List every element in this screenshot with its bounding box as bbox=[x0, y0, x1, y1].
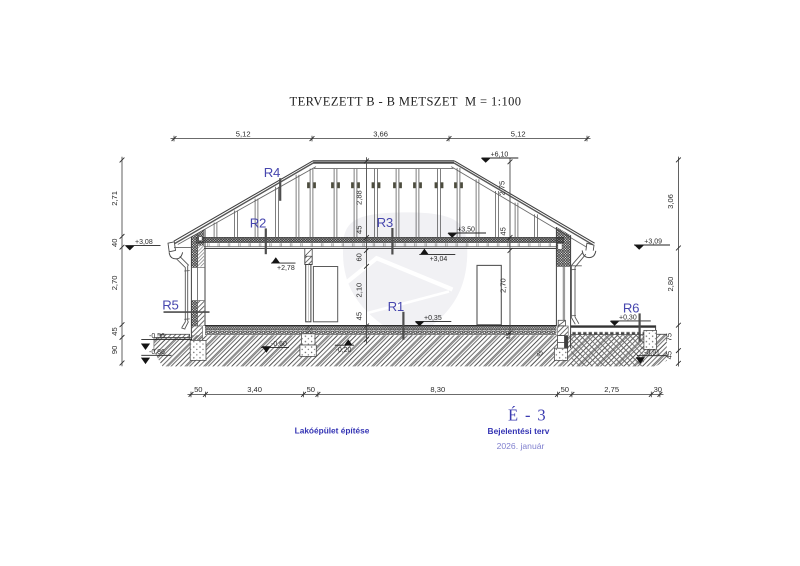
svg-text:+2,78: +2,78 bbox=[277, 265, 295, 272]
svg-text:2,80: 2,80 bbox=[666, 277, 675, 292]
svg-text:2,75: 2,75 bbox=[604, 385, 619, 394]
svg-text:90: 90 bbox=[110, 346, 119, 354]
svg-text:2026. január: 2026. január bbox=[497, 441, 545, 451]
svg-text:60: 60 bbox=[355, 253, 364, 261]
svg-text:45: 45 bbox=[499, 227, 508, 235]
svg-text:R4: R4 bbox=[264, 165, 280, 180]
svg-text:Lakóépület építése: Lakóépület építése bbox=[295, 426, 370, 436]
svg-text:-0,91: -0,91 bbox=[644, 350, 660, 357]
svg-text:R2: R2 bbox=[250, 216, 266, 231]
svg-text:-0,56: -0,56 bbox=[149, 333, 165, 340]
svg-text:2,70: 2,70 bbox=[110, 276, 119, 291]
svg-text:40: 40 bbox=[110, 239, 119, 247]
svg-text:5,12: 5,12 bbox=[236, 130, 251, 139]
svg-text:+3,08: +3,08 bbox=[135, 239, 153, 246]
svg-text:3,40: 3,40 bbox=[247, 385, 262, 394]
svg-text:45: 45 bbox=[355, 312, 364, 320]
svg-text:45: 45 bbox=[110, 327, 119, 335]
svg-text:50: 50 bbox=[307, 385, 315, 394]
svg-text:-0,60: -0,60 bbox=[271, 341, 287, 348]
svg-text:R5: R5 bbox=[162, 298, 178, 313]
svg-text:2,10: 2,10 bbox=[355, 283, 364, 298]
svg-text:TERVEZETT B - B METSZET M = 1: TERVEZETT B - B METSZET M = 1:100 bbox=[290, 94, 522, 108]
svg-text:+3,04: +3,04 bbox=[430, 256, 448, 263]
svg-text:2,71: 2,71 bbox=[110, 191, 119, 206]
svg-text:+3,50: +3,50 bbox=[457, 226, 475, 233]
svg-text:8,30: 8,30 bbox=[430, 385, 445, 394]
svg-text:45: 45 bbox=[665, 351, 674, 359]
svg-text:+0,35: +0,35 bbox=[424, 315, 442, 322]
svg-text:75: 75 bbox=[665, 333, 674, 341]
svg-text:-0,20: -0,20 bbox=[336, 347, 352, 354]
svg-text:+6,10: +6,10 bbox=[491, 151, 509, 158]
svg-text:3,06: 3,06 bbox=[666, 194, 675, 209]
svg-text:2,88: 2,88 bbox=[355, 190, 364, 205]
svg-text:2,75: 2,75 bbox=[497, 181, 506, 196]
svg-text:30: 30 bbox=[654, 385, 662, 394]
svg-text:50: 50 bbox=[561, 385, 569, 394]
svg-text:Bejelentési terv: Bejelentési terv bbox=[488, 426, 550, 436]
svg-text:R3: R3 bbox=[377, 215, 393, 230]
svg-text:2,70: 2,70 bbox=[499, 278, 508, 293]
svg-text:R1: R1 bbox=[388, 299, 404, 314]
svg-text:3,66: 3,66 bbox=[373, 130, 388, 139]
svg-text:-0,86: -0,86 bbox=[149, 349, 165, 356]
svg-text:R6: R6 bbox=[623, 301, 639, 316]
svg-text:45: 45 bbox=[506, 332, 513, 339]
svg-text:É - 3: É - 3 bbox=[508, 405, 547, 424]
svg-text:5,12: 5,12 bbox=[511, 130, 526, 139]
svg-text:+3,09: +3,09 bbox=[644, 238, 662, 245]
svg-text:50: 50 bbox=[194, 385, 202, 394]
svg-text:45: 45 bbox=[355, 225, 364, 233]
